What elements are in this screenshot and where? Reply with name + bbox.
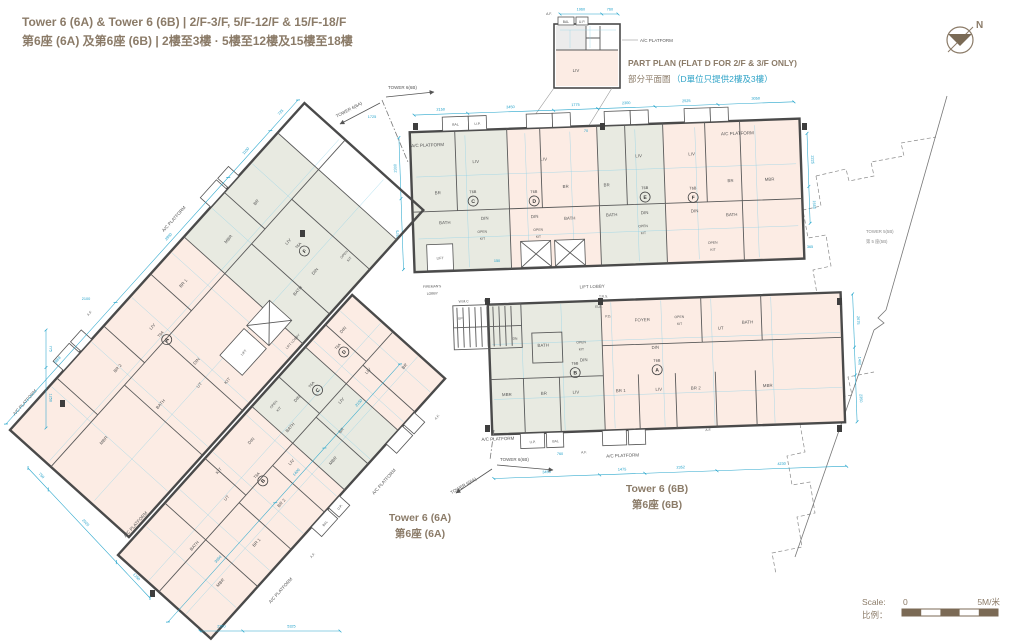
svg-text:DIN: DIN: [531, 214, 539, 219]
dim-label: 750: [38, 472, 45, 479]
svg-text:T6B: T6B: [530, 190, 538, 194]
svg-text:MBR: MBR: [763, 383, 773, 388]
room-label-firemans-1: FIREMAN'S: [423, 284, 442, 289]
dim-label: 2225: [810, 155, 814, 164]
svg-text:BR: BR: [727, 178, 733, 183]
room-label-bal: BAL: [552, 439, 559, 443]
svg-text:F: F: [692, 195, 695, 201]
svg-text:MBR: MBR: [502, 392, 512, 397]
svg-text:BATH: BATH: [537, 343, 549, 348]
flat-6b-c-area: [410, 129, 512, 272]
svg-text:FOYER: FOYER: [635, 317, 650, 323]
room-label-pd: P.D.: [605, 314, 611, 318]
north-compass-icon: N: [947, 20, 983, 53]
svg-text:KIT: KIT: [641, 231, 646, 235]
af-label: A.F.: [581, 450, 587, 454]
dim-number: 760: [557, 452, 563, 456]
room-label-up: U.P.: [474, 122, 481, 126]
dim-label: 4230: [777, 462, 786, 466]
svg-text:OPEN: OPEN: [477, 230, 487, 234]
scale-zero: 0: [903, 597, 908, 607]
site-boundary-break: [874, 310, 886, 330]
dim-chain-partplan: 1960760: [559, 8, 620, 16]
svg-text:KIT: KIT: [677, 322, 682, 326]
page-title-zh: 第6座 (6A) 及第6座 (6B) | 2樓至3樓 · 5樓至12樓及15樓至…: [22, 33, 353, 48]
svg-text:DIN: DIN: [691, 208, 699, 213]
svg-text:BR 1: BR 1: [616, 388, 627, 393]
dim-chain-6b-topright: 22251550: [806, 132, 817, 225]
tower-6a-name: Tower 6 (6A): [389, 512, 451, 524]
svg-text:DIN: DIN: [580, 357, 588, 362]
part-plan-liv-area: [556, 50, 618, 86]
dim-number: 2100: [82, 297, 90, 301]
part-plan-caption: PART PLAN (FLAT D FOR 2/F & 3/F ONLY): [628, 58, 797, 68]
dim-number: 70: [584, 129, 588, 133]
svg-text:LIV: LIV: [540, 156, 547, 161]
dim-label: 2350: [859, 394, 863, 403]
svg-text:KIT: KIT: [579, 347, 584, 351]
boundary-label-6a: TOWER 6(6A): [450, 476, 478, 495]
room-label-ac: A/C PLATFORM: [640, 38, 673, 43]
dim-label: 760: [607, 8, 613, 12]
svg-text:DIN: DIN: [641, 210, 649, 215]
svg-text:OPEN: OPEN: [638, 224, 648, 228]
tower-6b-name-zh: 第6座 (6B): [632, 498, 682, 511]
svg-text:OPEN: OPEN: [576, 340, 586, 344]
svg-text:KIT: KIT: [536, 235, 541, 239]
part-plan-caption-zh: 部分平面圖: [628, 74, 671, 84]
room-label-firemans-2: LOBBY: [427, 291, 439, 295]
svg-text:LIV: LIV: [472, 159, 479, 164]
flat-6b-a-area: [601, 292, 845, 430]
boundary-label-6b: TOWER 6(6B): [500, 457, 529, 462]
dim-number: 365: [807, 245, 813, 249]
dim-label: 2675: [856, 316, 860, 325]
svg-text:OPEN: OPEN: [533, 228, 543, 232]
svg-text:KIT: KIT: [710, 248, 715, 252]
dim-label: 775: [49, 346, 53, 352]
svg-text:T6B: T6B: [689, 186, 697, 190]
svg-text:BR: BR: [563, 184, 569, 189]
dim-label: 3450: [542, 470, 551, 474]
part-plan-caption-note: （D單位只提供2樓及3樓）: [672, 74, 773, 84]
scale-bar: Scale: 0 5M/米 比例：: [862, 597, 1000, 620]
svg-text:BR 2: BR 2: [691, 385, 702, 390]
compass-n-label: N: [976, 20, 983, 31]
room-label-af: A.F.: [546, 12, 552, 16]
dim-number: 1725: [368, 115, 376, 119]
dim-chain-bottom: 23505325: [199, 625, 342, 633]
svg-text:T6B: T6B: [571, 361, 579, 365]
tower-6b-name: Tower 6 (6B): [626, 483, 688, 495]
dim-label: 1960: [577, 8, 585, 12]
svg-text:BATH: BATH: [742, 319, 754, 324]
room-label-up: U.P.: [579, 20, 585, 24]
scale-label: Scale:: [862, 597, 886, 607]
dim-line: [399, 138, 404, 270]
svg-text:MBR: MBR: [765, 177, 775, 182]
page-title: Tower 6 (6A) & Tower 6 (6B) | 2/F-3/F, 5…: [22, 15, 346, 29]
room-label-bal: BAL: [563, 20, 570, 24]
svg-text:T6B: T6B: [469, 190, 477, 194]
dim-label: 725: [277, 109, 284, 116]
room-label-lift-lobby: LIFT LOBBY: [579, 284, 604, 290]
af-label: A.F.: [309, 552, 316, 559]
scale-label-zh: 比例：: [862, 610, 888, 620]
part-plan-room: [556, 26, 586, 50]
svg-text:UT: UT: [718, 325, 724, 330]
svg-text:LIV: LIV: [688, 151, 695, 156]
svg-text:A: A: [655, 367, 659, 373]
boundary-label-6a: TOWER 6(6A): [335, 100, 363, 118]
svg-text:D: D: [532, 199, 536, 205]
svg-text:LIV: LIV: [655, 387, 662, 392]
room-label-ele: ELE.: [595, 305, 603, 309]
ac-platform-label: A/C PLATFORM: [268, 576, 294, 604]
boundary-label-6b: TOWER 6(6B): [388, 85, 417, 90]
room-label-up: U.P.: [529, 440, 536, 444]
svg-text:T6B: T6B: [641, 186, 649, 190]
svg-text:BATH: BATH: [439, 220, 451, 225]
dim-chain-6b-right: 267514002350: [851, 292, 863, 423]
floor-plan-sheet: Tower 6 (6A) & Tower 6 (6B) | 2/F-3/F, 5…: [0, 0, 1024, 641]
dim-label: 1400: [857, 357, 861, 366]
tower5-dashed-outline-2left: [772, 424, 815, 574]
svg-text:KIT: KIT: [480, 237, 485, 241]
dim-line: [807, 133, 810, 223]
dim-label: 1550: [812, 200, 816, 209]
room-label-bal: BAL: [452, 123, 459, 127]
svg-text:BR: BR: [604, 182, 610, 187]
svg-text:DIN: DIN: [651, 345, 659, 350]
svg-text:BATH: BATH: [564, 216, 576, 221]
room-label-wmc: W.M.C: [459, 299, 470, 303]
svg-text:BATH: BATH: [726, 212, 738, 217]
stair-up-label: UP: [458, 316, 464, 320]
dim-chain-6b-bottom: 3450147523524230: [492, 460, 848, 480]
dim-label: 2350: [217, 625, 225, 629]
tower5-label-zh: 第 5 座(5B): [866, 238, 888, 245]
dim-label: 1250: [49, 394, 53, 402]
svg-text:DIN: DIN: [481, 216, 489, 221]
ac-platform-label: A/C PLATFORM: [161, 205, 187, 233]
site-boundary-line-upper: [886, 96, 947, 310]
dim-label: 5325: [287, 625, 295, 629]
tower5-dashed-outline-top: [816, 137, 936, 181]
dim-label: 3050: [751, 97, 760, 101]
dim-label: 2300: [393, 164, 397, 173]
svg-text:B: B: [573, 370, 577, 376]
svg-text:LIV: LIV: [635, 153, 642, 158]
svg-text:BR: BR: [435, 190, 441, 195]
flat-6b-e-area: [597, 123, 668, 265]
svg-text:T6B: T6B: [653, 359, 661, 363]
svg-text:LIV: LIV: [572, 389, 579, 394]
svg-text:BATH: BATH: [606, 212, 618, 217]
dim-label: 1475: [618, 467, 627, 471]
dim-label: 2150: [436, 108, 445, 112]
svg-text:OPEN: OPEN: [674, 315, 684, 319]
svg-text:C: C: [471, 199, 475, 205]
svg-text:BR: BR: [541, 391, 547, 396]
stair-dn-label: DN: [512, 337, 518, 341]
af-label: A.F.: [86, 310, 93, 317]
ac-platform-label: A/C PLATFORM: [481, 436, 514, 442]
dim-label: 3450: [506, 105, 515, 109]
room-label-lift: LIFT: [437, 256, 444, 260]
ac-platform-label: A/C PLATFORM: [371, 468, 397, 496]
dim-label: 2352: [676, 465, 685, 469]
svg-text:OPEN: OPEN: [708, 241, 718, 245]
ac-platform-label: A/C PLATFORM: [606, 452, 639, 458]
scale-max: 5M/米: [977, 597, 1000, 607]
tower5-label-en: TOWER 5(5B): [866, 229, 894, 234]
tower-6b-block: UP DN LIFT LIFT LOBBY FIREMAN'S LOBBY W.…: [391, 93, 865, 483]
room-label-liv: LIV: [573, 68, 580, 73]
header: Tower 6 (6A) & Tower 6 (6B) | 2/F-3/F, 5…: [22, 15, 353, 48]
dim-number: 150: [494, 259, 500, 263]
dim-line: [853, 294, 857, 422]
dim-chain-6b-left: 26752300: [392, 136, 405, 271]
af-label: A.F.: [434, 414, 441, 421]
flat-6b-f-area: [663, 119, 805, 264]
dim-label: 2525: [682, 99, 691, 103]
tower-6a-name-zh: 第6座 (6A): [395, 527, 445, 540]
dim-label: 1775: [571, 103, 580, 107]
dim-label: 2300: [622, 101, 631, 105]
af-label: A.F.: [705, 428, 711, 432]
